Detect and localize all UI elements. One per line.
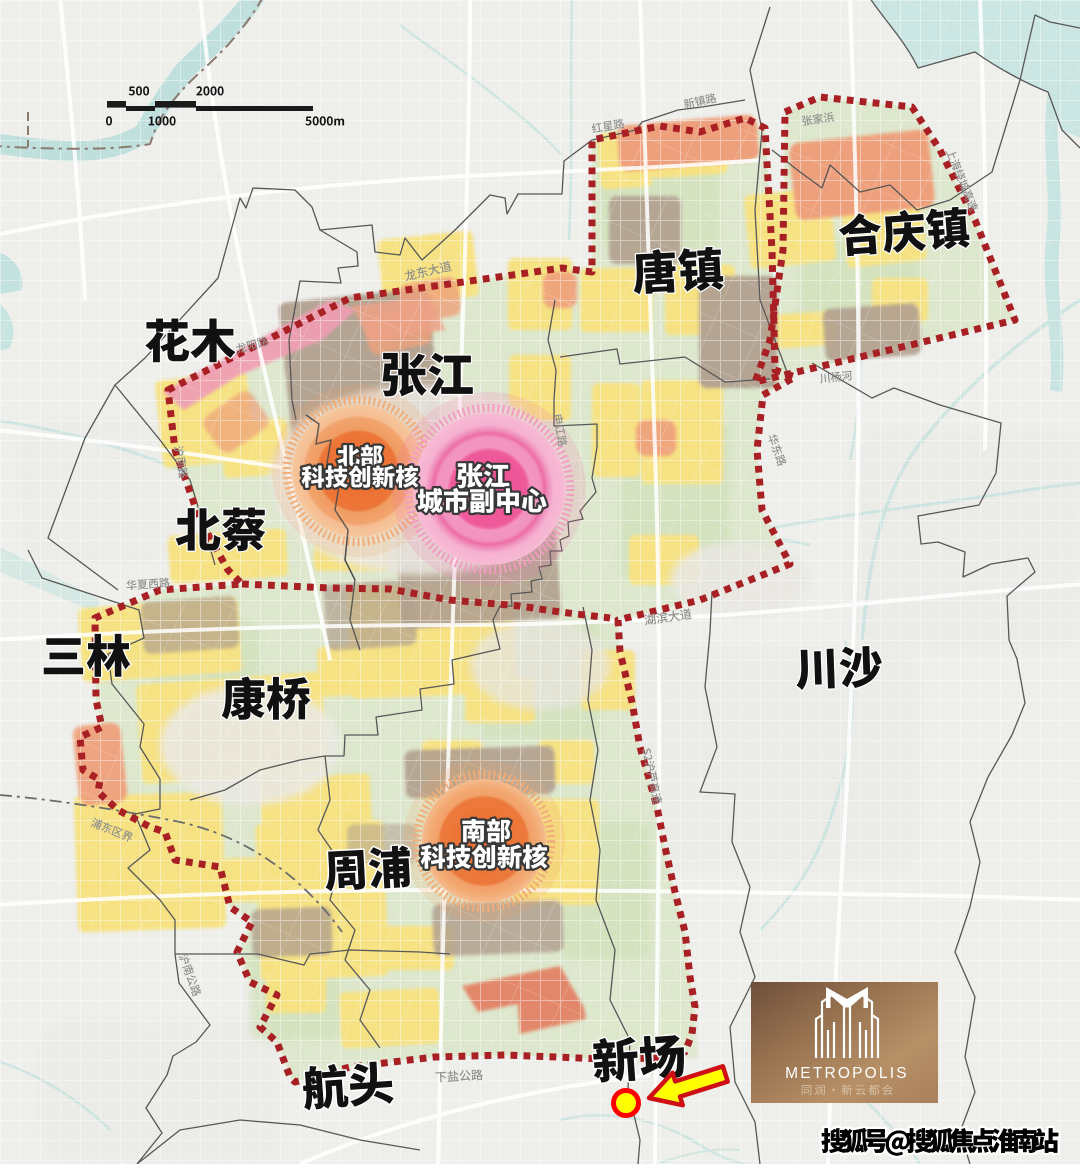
svg-text:METROPOLIS: METROPOLIS	[785, 1065, 909, 1082]
